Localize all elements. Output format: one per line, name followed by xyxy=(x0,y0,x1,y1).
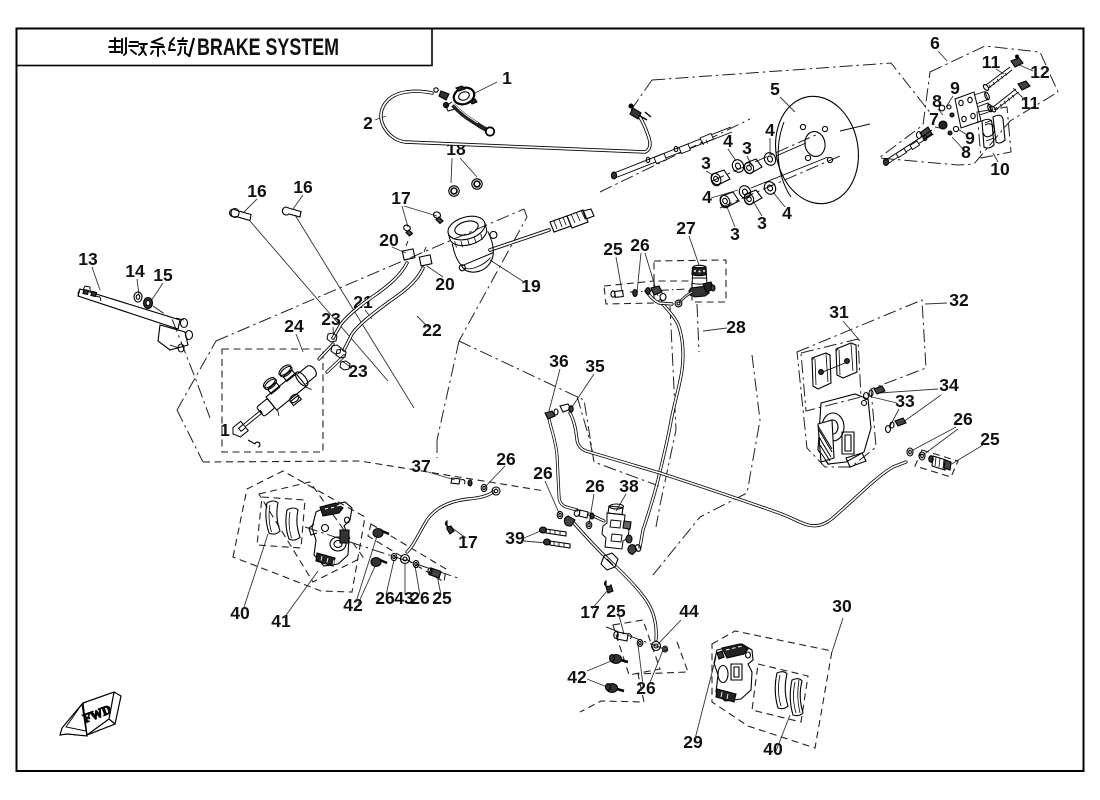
svg-text:23: 23 xyxy=(348,361,368,381)
svg-text:9: 9 xyxy=(950,78,960,98)
svg-text:8: 8 xyxy=(932,91,942,111)
svg-text:3: 3 xyxy=(701,153,711,173)
svg-text:40: 40 xyxy=(230,603,250,623)
svg-text:39: 39 xyxy=(505,528,525,548)
svg-text:5: 5 xyxy=(770,79,780,99)
svg-text:17: 17 xyxy=(580,602,599,622)
svg-text:26: 26 xyxy=(375,588,395,608)
svg-text:BRAKE SYSTEM: BRAKE SYSTEM xyxy=(197,34,339,61)
svg-text:17: 17 xyxy=(391,188,410,208)
svg-text:34: 34 xyxy=(939,375,959,395)
svg-text:14: 14 xyxy=(125,261,145,281)
svg-text:12: 12 xyxy=(1030,62,1050,82)
svg-text:44: 44 xyxy=(679,601,699,621)
svg-text:42: 42 xyxy=(343,595,363,615)
svg-text:33: 33 xyxy=(895,391,915,411)
svg-text:2: 2 xyxy=(363,113,373,133)
svg-text:16: 16 xyxy=(247,181,267,201)
svg-text:26: 26 xyxy=(585,476,605,496)
svg-text:24: 24 xyxy=(284,316,304,336)
svg-text:26: 26 xyxy=(953,409,973,429)
svg-text:11: 11 xyxy=(1021,93,1040,113)
svg-text:35: 35 xyxy=(585,356,605,376)
svg-text:25: 25 xyxy=(606,601,626,621)
svg-text:18: 18 xyxy=(446,139,466,159)
svg-text:22: 22 xyxy=(422,320,442,340)
svg-text:3: 3 xyxy=(730,224,740,244)
svg-text:29: 29 xyxy=(683,732,703,752)
svg-text:31: 31 xyxy=(829,302,849,322)
svg-text:42: 42 xyxy=(567,667,587,687)
svg-text:26: 26 xyxy=(630,235,650,255)
svg-text:26: 26 xyxy=(410,588,430,608)
svg-text:11: 11 xyxy=(982,52,1001,72)
svg-text:26: 26 xyxy=(636,678,656,698)
svg-text:20: 20 xyxy=(435,274,455,294)
svg-text:26: 26 xyxy=(533,463,553,483)
svg-text:7: 7 xyxy=(929,109,939,129)
svg-text:3: 3 xyxy=(757,213,767,233)
svg-text:4: 4 xyxy=(702,187,712,207)
svg-text:16: 16 xyxy=(293,177,313,197)
svg-text:25: 25 xyxy=(980,429,1000,449)
svg-text:4: 4 xyxy=(765,120,775,140)
svg-text:13: 13 xyxy=(78,249,98,269)
svg-text:15: 15 xyxy=(153,265,173,285)
svg-text:3: 3 xyxy=(742,138,752,158)
svg-text:40: 40 xyxy=(763,739,783,759)
svg-text:38: 38 xyxy=(619,476,639,496)
svg-text:1: 1 xyxy=(502,68,512,88)
svg-text:28: 28 xyxy=(726,317,746,337)
svg-text:10: 10 xyxy=(990,159,1010,179)
svg-text:30: 30 xyxy=(832,596,852,616)
svg-text:27: 27 xyxy=(676,218,695,238)
svg-text:19: 19 xyxy=(521,276,541,296)
svg-text:8: 8 xyxy=(961,142,971,162)
svg-text:37: 37 xyxy=(411,456,430,476)
svg-text:41: 41 xyxy=(271,611,291,631)
svg-text:36: 36 xyxy=(549,351,569,371)
svg-text:32: 32 xyxy=(949,290,969,310)
svg-text:25: 25 xyxy=(432,588,452,608)
svg-text:26: 26 xyxy=(496,449,516,469)
svg-text:20: 20 xyxy=(379,230,399,250)
svg-text:25: 25 xyxy=(603,239,623,259)
svg-text:6: 6 xyxy=(930,33,940,53)
